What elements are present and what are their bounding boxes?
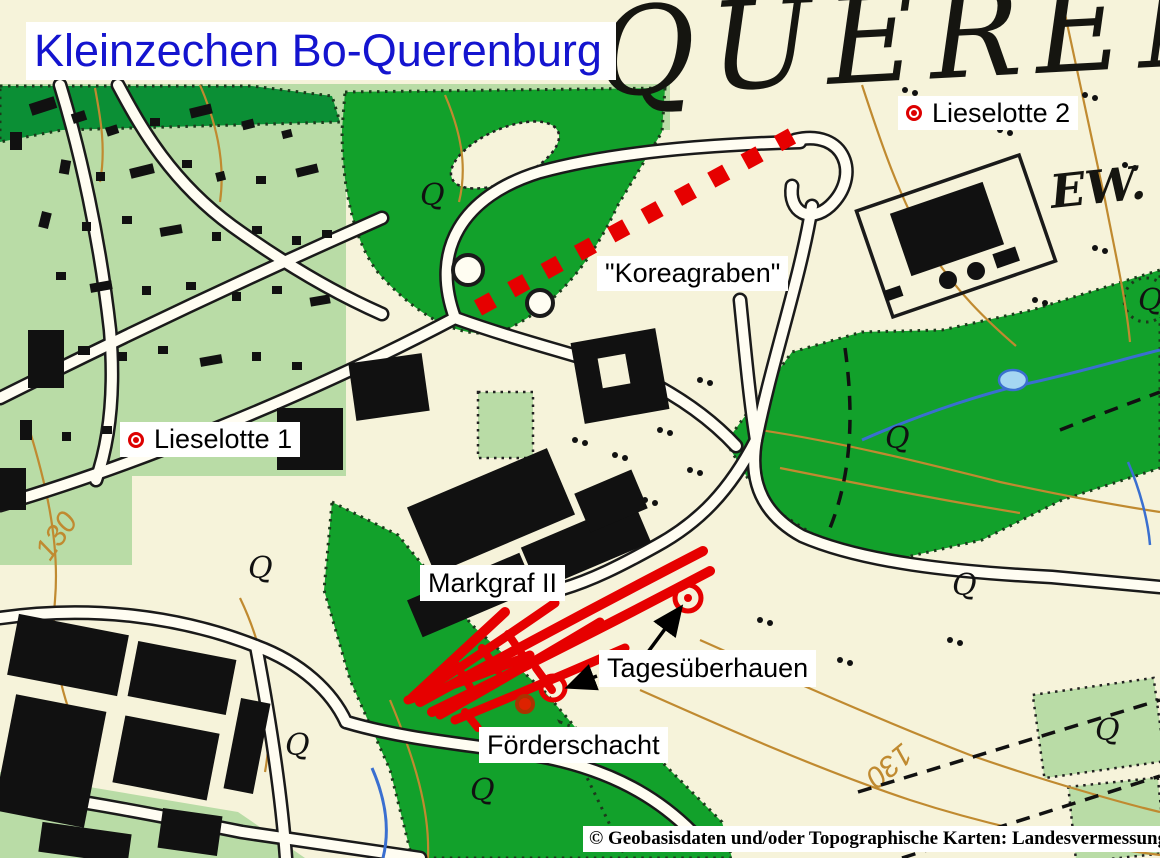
foerderschacht-text: Förderschacht — [487, 732, 660, 759]
map-slide: 130 130 — [0, 0, 1160, 858]
label-lieselotte-1: Lieselotte 1 — [120, 422, 300, 457]
lieselotte2-text: Lieselotte 2 — [932, 100, 1070, 127]
copyright-notice: © Geobasisdaten und/oder Topographische … — [583, 826, 1160, 852]
label-koreagraben: "Koreagraben" — [597, 256, 788, 291]
label-foerderschacht: Förderschacht — [479, 727, 668, 763]
tree-symbol-icon: Q — [285, 728, 310, 763]
tree-symbol-icon: Q — [248, 551, 273, 586]
lieselotte1-text: Lieselotte 1 — [154, 426, 292, 453]
tree-symbol-icon: Q — [470, 773, 495, 808]
copyright-text: © Geobasisdaten und/oder Topographische … — [589, 829, 1160, 848]
title-text: Kleinzechen Bo-Querenburg — [34, 28, 602, 73]
tree-symbol-icon: Q — [885, 421, 910, 456]
koreagraben-text: "Koreagraben" — [605, 260, 780, 287]
tree-symbol-icon: Q — [952, 568, 977, 603]
place-fragment-text: EW. — [1046, 155, 1149, 219]
markgraf-text: Markgraf II — [428, 570, 557, 597]
tree-symbol-icon: Q — [1095, 713, 1120, 748]
pond — [999, 370, 1027, 390]
page-title: Kleinzechen Bo-Querenburg — [26, 22, 616, 80]
shaft-dot-icon — [906, 105, 922, 121]
shaft-dot-icon — [128, 432, 144, 448]
foerderschacht-marker — [517, 696, 533, 712]
label-markgraf-ii: Markgraf II — [420, 565, 565, 601]
label-tagesueberhauen: Tagesüberhauen — [599, 650, 816, 687]
tree-symbol-icon: Q — [420, 178, 445, 213]
tagesueberhauen-marker-1-dot — [684, 594, 692, 602]
label-lieselotte-2: Lieselotte 2 — [898, 96, 1078, 130]
tree-symbol-icon: Q — [1138, 283, 1160, 318]
tagesueberhauen-text: Tagesüberhauen — [607, 655, 808, 682]
